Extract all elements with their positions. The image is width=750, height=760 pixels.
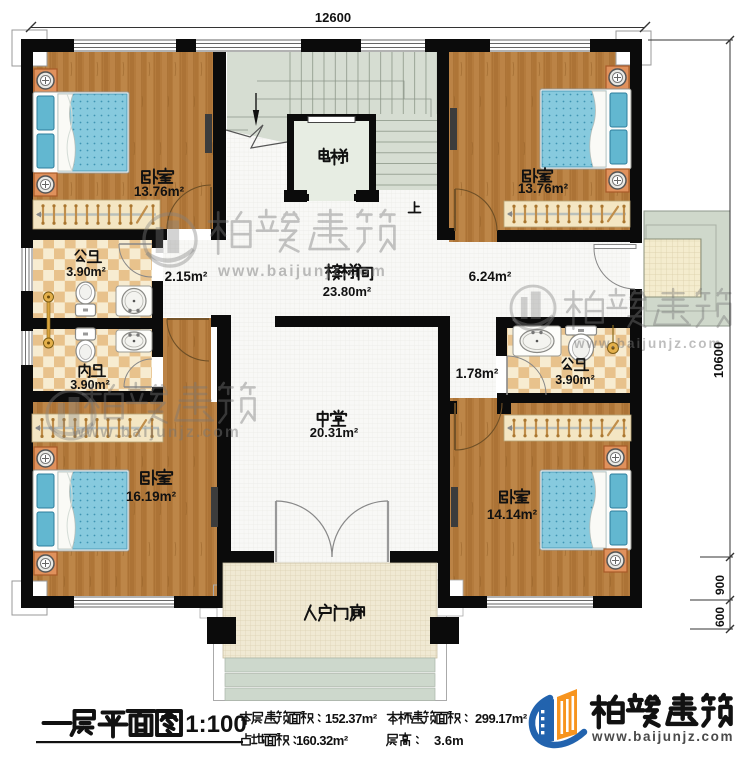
svg-text:23.80m²: 23.80m² [323,284,372,299]
svg-text:www.baijunjz.com: www.baijunjz.com [573,336,723,351]
svg-text:3.90m²: 3.90m² [66,265,106,279]
svg-text:6.24m²: 6.24m² [469,269,512,284]
svg-text:16.19m²: 16.19m² [126,489,177,504]
svg-text:1.78m²: 1.78m² [456,366,499,381]
svg-text:299.17m²: 299.17m² [475,711,528,726]
svg-text:13.76m²: 13.76m² [134,184,185,199]
svg-text:www.baijunjz.com: www.baijunjz.com [71,424,241,441]
svg-text:www.baijunjz.com: www.baijunjz.com [591,729,734,744]
svg-text:3.6m: 3.6m [434,733,464,748]
svg-text:10600: 10600 [711,342,726,378]
svg-text:152.37m²: 152.37m² [325,711,378,726]
svg-text:600: 600 [713,607,727,627]
svg-text:900: 900 [713,575,727,595]
svg-text:20.31m²: 20.31m² [310,425,359,440]
svg-text:14.14m²: 14.14m² [487,507,538,522]
svg-text:12600: 12600 [315,10,351,25]
svg-text:3.90m²: 3.90m² [70,378,110,392]
svg-text:www.baijunjz.com: www.baijunjz.com [217,263,387,280]
svg-text:2.15m²: 2.15m² [165,269,208,284]
svg-text:1:100: 1:100 [185,711,246,738]
svg-text:13.76m²: 13.76m² [518,181,569,196]
svg-text:3.90m²: 3.90m² [555,373,595,387]
svg-text:160.32m²: 160.32m² [296,733,349,748]
